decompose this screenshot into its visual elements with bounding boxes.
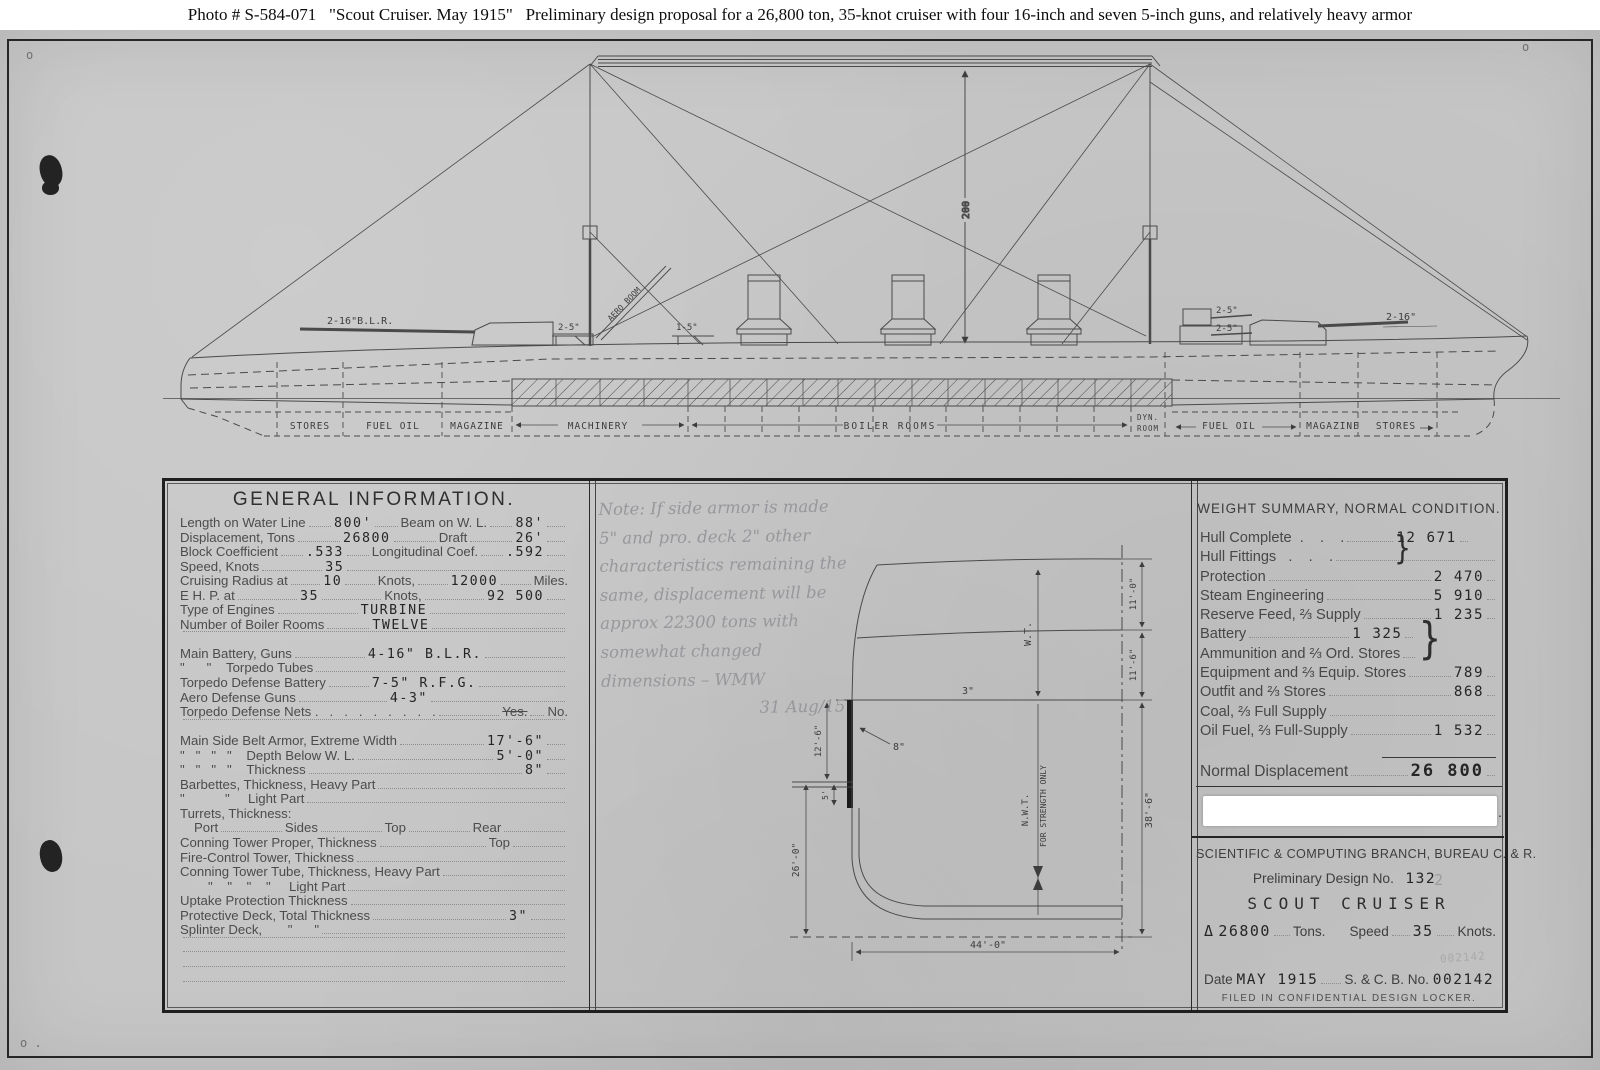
scanned-plan-page: { "caption": "Photo # S-584-071\u00a0\u0… — [0, 0, 1600, 1070]
info-row-firecontrol: Fire-Control Tower, Thickness — [180, 850, 568, 865]
weight-row-battery: Battery 1 325 — [1200, 626, 1498, 645]
pencil-filing-number: 002142 — [1440, 949, 1487, 965]
row-value: 800' — [334, 516, 372, 530]
info-row-main-battery: Main Battery, Guns 4-16" B.L.R. — [180, 646, 568, 661]
branch-divider — [1192, 836, 1504, 838]
battery-brace: } — [1419, 617, 1441, 661]
design-number-label: Preliminary Design No. — [1253, 871, 1394, 886]
info-row-length: Length on Water Line 800' Beam on W. L. … — [180, 515, 568, 530]
compartment-dyn-room: ROOM — [1137, 424, 1159, 433]
note-signature: 31 Aug/15 — [759, 692, 877, 722]
compartment-stores-aft: STORES — [1376, 421, 1416, 432]
weight-row-reserve-feed: Reserve Feed, ⅔ Supply 1 235 — [1200, 607, 1498, 626]
panel-divider-left — [589, 481, 596, 1010]
normal-displacement-label: Normal Displacement — [1200, 763, 1348, 781]
knots-label: Knots. — [1457, 924, 1496, 939]
info-row-turrets-heading: Turrets, Thickness: — [180, 806, 568, 821]
scb-number-value: 002142 — [1433, 972, 1494, 988]
info-row-belt-width: Main Side Belt Armor, Extreme Width 17'-… — [180, 733, 568, 748]
note-line: dimensions – WMW — [601, 664, 877, 696]
info-row-barbettes-heavy: Barbettes, Thickness, Heavy Part — [180, 777, 568, 792]
weight-row-equipment: Equipment and ⅔ Equip. Stores 789 — [1200, 665, 1498, 684]
date-label: Date — [1204, 972, 1233, 987]
note-line: somewhat changed — [600, 635, 876, 667]
aerial-wires — [590, 56, 1160, 67]
blank-row — [180, 937, 568, 952]
weight-summary-panel: WEIGHT SUMMARY, NORMAL CONDITION. Hull C… — [1196, 489, 1502, 1009]
note-line: same, displacement will be — [600, 578, 876, 610]
branch-name: SCIENTIFIC & COMPUTING BRANCH, BUREAU C.… — [1196, 847, 1502, 861]
fwd-main-gun-label: 2-16"B.L.R. — [327, 316, 393, 327]
date-value: MAY 1915 — [1237, 972, 1319, 988]
nets-yes: Yes. — [502, 704, 527, 719]
fore-mast — [583, 64, 597, 346]
nets-no: No. — [547, 704, 568, 719]
funnel-3 — [1027, 275, 1081, 345]
info-row-cruising-radius: Cruising Radius at 10 Knots, 12000 Miles… — [180, 573, 568, 588]
corner-mark-top-left: o — [26, 48, 33, 62]
corner-mark-top-right: o — [1522, 40, 1529, 54]
row-label2: Beam on W. L. — [401, 515, 488, 530]
weight-row-protection: Protection 2 470 — [1200, 569, 1498, 588]
row-label: Length on Water Line — [180, 515, 306, 530]
weight-row-outfit: Outfit and ⅔ Stores 868 — [1200, 684, 1498, 703]
info-row-splinter-deck: Splinter Deck, " " — [180, 922, 568, 937]
row-value2: 88' — [515, 516, 544, 530]
height-dimension-label: 200 — [961, 201, 972, 219]
date-row: Date MAY 1915 S. & C. B. No. 002142 — [1204, 972, 1496, 988]
armor-belt — [512, 379, 1172, 406]
ship-type: SCOUT CRUISER — [1196, 894, 1502, 913]
weight-row-ammunition: Ammunition and ⅔ Ord. Stores — [1200, 646, 1498, 665]
blank-row — [180, 966, 568, 981]
info-row-block-coef: Block Coefficient .533 Longitudinal Coef… — [180, 544, 568, 559]
mid-sec-gun-label: 1-5" — [676, 323, 698, 333]
height-dimension: 200 — [961, 71, 972, 343]
aero-boom-label: AERO BOOM — [606, 285, 643, 323]
info-row-belt-thickness: " " " " Thickness 8" — [180, 762, 568, 777]
funnel-1 — [737, 275, 791, 345]
note-line: 5" and pro. deck 2" other — [599, 521, 875, 553]
tons-value: 26800 — [1218, 922, 1271, 940]
weight-row-hull-fittings: Hull Fittings . . . — [1200, 549, 1498, 568]
rigging-stays — [192, 64, 1527, 357]
speed-value: 35 — [1413, 922, 1434, 940]
general-information-table: GENERAL INFORMATION. Length on Water Lin… — [180, 489, 568, 1003]
note-line: Note: If side armor is made — [598, 492, 874, 524]
info-row-ehp: E H. P. at 35 Knots, 92 500 — [180, 588, 568, 603]
note-line: approx 22300 tons with — [600, 606, 876, 638]
pencil-note: Note: If side armor is made 5" and pro. … — [598, 492, 877, 725]
info-row-turret-sides: Port Sides Top Rear — [180, 820, 568, 835]
compartment-magazine-fwd: MAGAZINE — [450, 421, 504, 432]
delta-symbol: Δ — [1204, 922, 1215, 940]
scb-number-label: S. & C. B. No. — [1344, 972, 1429, 987]
info-row-torpedo-nets: Torpedo Defense Nets . . . . . . . . . Y… — [180, 704, 568, 719]
forward-5in-gun — [552, 336, 594, 345]
main-mast — [1143, 64, 1157, 344]
blank-row — [180, 951, 568, 966]
compartment-magazine-aft: MAGAZINE — [1306, 421, 1360, 432]
design-number-row: Preliminary Design No. 1322 — [1196, 869, 1502, 887]
compartment-stores-fwd: STORES — [290, 421, 330, 432]
fwd-sec-gun-label: 2-5" — [558, 323, 580, 333]
total-underline — [1196, 786, 1502, 787]
design-number-value: 132 — [1405, 871, 1436, 887]
design-number-scribble: 2 — [1434, 871, 1443, 889]
corner-mark-bottom-left: o . — [20, 1036, 42, 1050]
weight-summary-rows: Hull Complete . . . 12 671 Hull Fittings… — [1200, 530, 1498, 742]
info-row-conning-tower: Conning Tower Proper, Thickness Top — [180, 835, 568, 850]
funnel-2 — [881, 275, 935, 345]
redaction-period: . — [1498, 804, 1502, 820]
hole-punch-top-notch — [42, 181, 59, 195]
info-row-protective-deck: Protective Deck, Total Thickness 3" — [180, 908, 568, 923]
compartment-machinery: MACHINERY — [568, 421, 628, 432]
aft-sec-gun-upper-label: 2-5" — [1216, 306, 1238, 316]
note-line: characteristics remaining the — [599, 549, 875, 581]
info-row-torpedo-tubes: " " Torpedo Tubes — [180, 660, 568, 675]
info-row-uptake: Uptake Protection Thickness — [180, 893, 568, 908]
info-row-barbettes-light: " " Light Part — [180, 791, 568, 806]
displacement-speed-row: Δ 26800 Tons. Speed 35 Knots. — [1204, 922, 1496, 940]
filed-notice: FILED IN CONFIDENTIAL DESIGN LOCKER. — [1196, 993, 1502, 1004]
weight-row-hull-complete: Hull Complete . . . 12 671 — [1200, 530, 1498, 549]
compartment-fueloil-aft: FUEL OIL — [1202, 421, 1256, 432]
info-row-aero-defense: Aero Defense Guns 4-3" — [180, 690, 568, 705]
weight-row-coal: Coal, ⅔ Full Supply — [1200, 704, 1498, 723]
normal-displacement-row: Normal Displacement 26 800 — [1200, 761, 1498, 781]
info-row-ct-tube-heavy: Conning Tower Tube, Thickness, Heavy Par… — [180, 864, 568, 879]
info-row-speed: Speed, Knots 35 — [180, 559, 568, 574]
blank-row — [180, 719, 568, 734]
weight-row-steam-engineering: Steam Engineering 5 910 — [1200, 588, 1498, 607]
funnels — [737, 275, 1081, 345]
redaction-bar — [1203, 796, 1497, 826]
normal-displacement-value: 26 800 — [1411, 761, 1484, 781]
tons-label: Tons. — [1293, 924, 1326, 939]
info-row-boiler-rooms: Number of Boiler Rooms TWELVE — [180, 617, 568, 632]
aft-sec-gun-lower-label: 2-5" — [1216, 324, 1238, 334]
compartment-fueloil-fwd: FUEL OIL — [366, 421, 420, 432]
profile-labels: 2-16"B.L.R. 2-5" 1-5" AERO BOOM 2-5" 2-5… — [290, 285, 1416, 433]
compartment-arrows — [516, 425, 1433, 428]
general-information-title: GENERAL INFORMATION. — [180, 489, 568, 515]
total-overline — [1382, 757, 1496, 758]
ship-profile: 200 — [163, 56, 1560, 436]
speed-label: Speed — [1349, 924, 1388, 939]
info-row-displacement: Displacement, Tons 26800 Draft 26' — [180, 530, 568, 545]
info-row-torpedo-defense: Torpedo Defense Battery 7-5" R.F.G. — [180, 675, 568, 690]
hull-brace: } — [1394, 531, 1411, 564]
info-row-ct-tube-light: " " " " Light Part — [180, 879, 568, 894]
compartment-boiler-rooms: BOILER ROOMS — [844, 421, 937, 432]
info-row-engines: Type of Engines TURBINE — [180, 602, 568, 617]
aft-main-gun-label: 2-16" — [1386, 312, 1416, 323]
compartment-dyn: DYN. — [1137, 413, 1159, 422]
blank-row — [180, 981, 568, 996]
weight-row-oil-fuel: Oil Fuel, ⅔ Full-Supply 1 532 — [1200, 723, 1498, 742]
weight-summary-title: WEIGHT SUMMARY, NORMAL CONDITION. — [1196, 501, 1502, 516]
info-row-belt-depth: " " " " Depth Below W. L. 5'-0" — [180, 748, 568, 763]
blank-row — [180, 631, 568, 646]
